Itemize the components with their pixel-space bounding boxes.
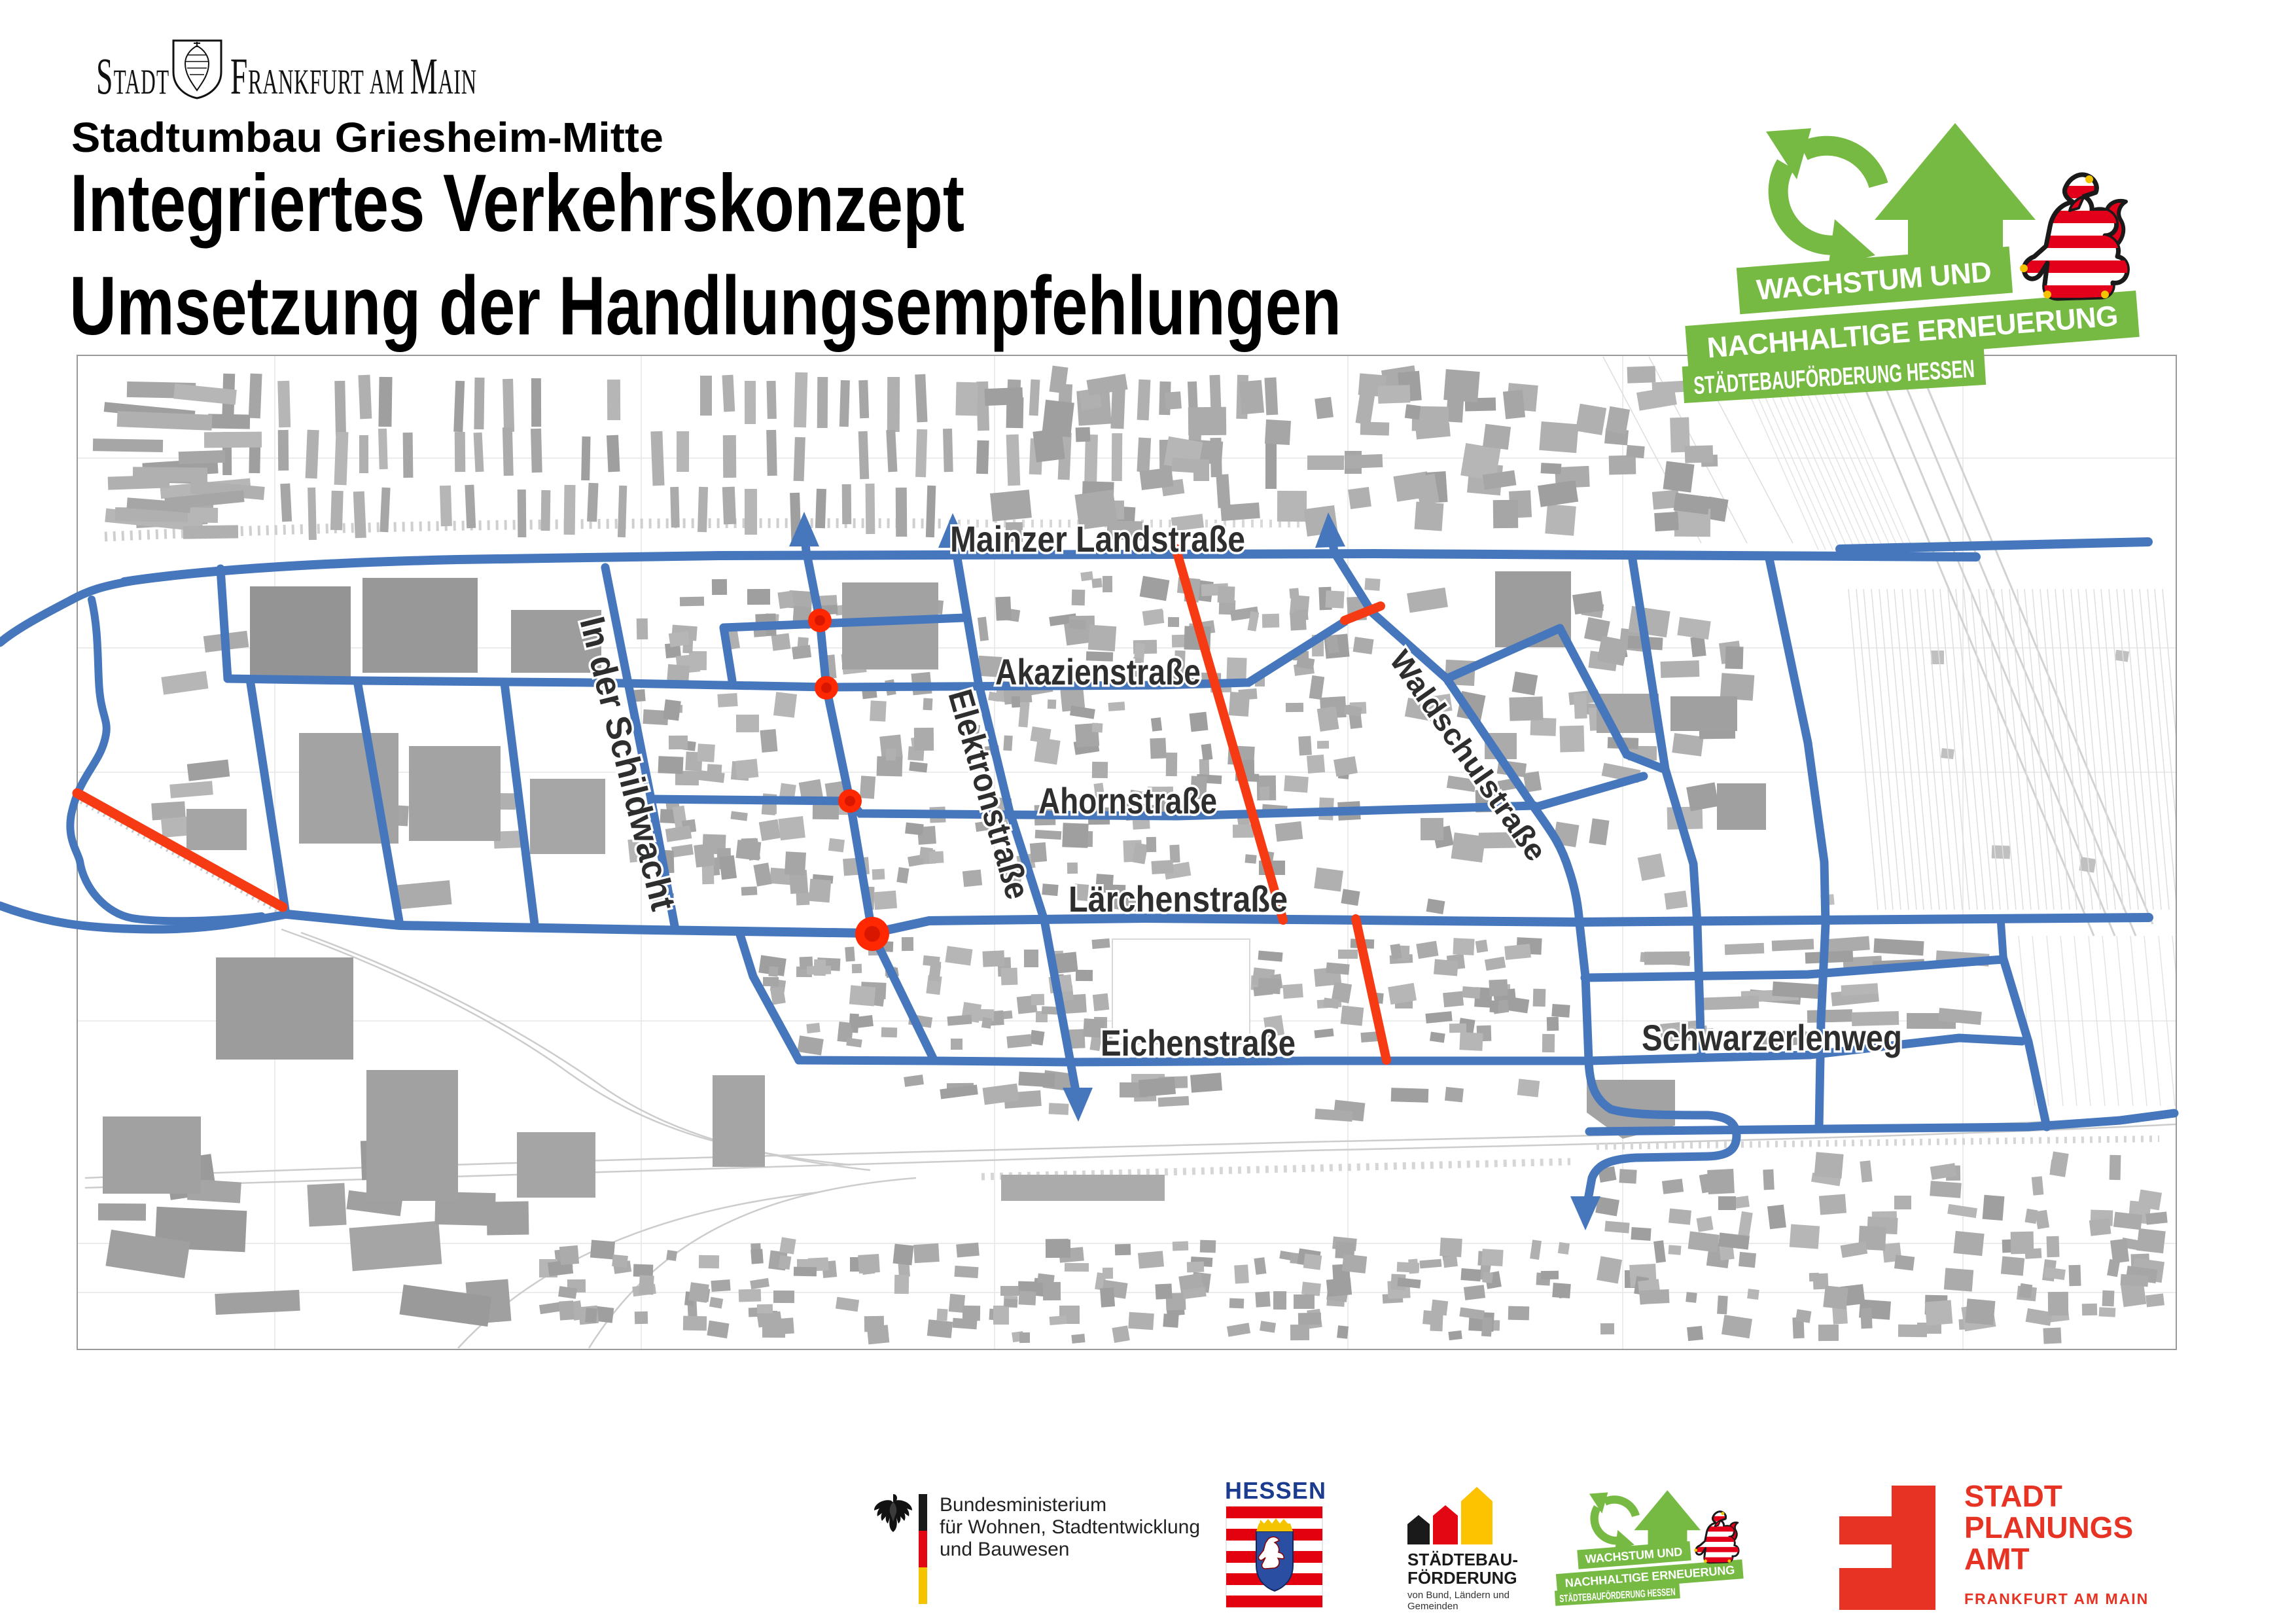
svg-text:Umsetzung der Handlungsempfehl: Umsetzung der Handlungsempfehlungen	[69, 259, 1341, 352]
svg-text:Akazienstraße: Akazienstraße	[995, 651, 1201, 692]
svg-text:Schwarzerlenweg: Schwarzerlenweg	[1642, 1017, 1902, 1058]
svg-text:PLANUNGS: PLANUNGS	[1964, 1510, 2133, 1544]
svg-text:Lärchenstraße: Lärchenstraße	[1069, 878, 1288, 919]
svg-text:AMT: AMT	[1964, 1542, 2030, 1576]
svg-text:FÖRDERUNG: FÖRDERUNG	[1407, 1568, 1517, 1588]
svg-text:für Wohnen, Stadtentwicklung: für Wohnen, Stadtentwicklung	[940, 1516, 1200, 1538]
svg-text:Gemeinden: Gemeinden	[1407, 1601, 1458, 1612]
svg-text:FRANKFURT AM MAIN: FRANKFURT AM MAIN	[1964, 1590, 2149, 1607]
svg-text:Ahornstraße: Ahornstraße	[1038, 780, 1217, 821]
svg-text:Bundesministerium: Bundesministerium	[940, 1494, 1106, 1516]
svg-text:Mainzer Landstraße: Mainzer Landstraße	[950, 518, 1245, 560]
svg-text:von Bund, Ländern und: von Bund, Ländern und	[1407, 1590, 1510, 1601]
svg-text:STADT: STADT	[1964, 1479, 2062, 1513]
svg-text:Integriertes Verkehrskonzept: Integriertes Verkehrskonzept	[70, 158, 964, 249]
svg-text:und Bauwesen: und Bauwesen	[940, 1539, 1070, 1560]
svg-text:STÄDTEBAU-: STÄDTEBAU-	[1407, 1550, 1518, 1569]
svg-text:HESSEN: HESSEN	[1225, 1477, 1326, 1504]
svg-text:Stadtumbau Griesheim-Mitte: Stadtumbau Griesheim-Mitte	[71, 114, 663, 161]
svg-text:Eichenstraße: Eichenstraße	[1101, 1022, 1296, 1063]
